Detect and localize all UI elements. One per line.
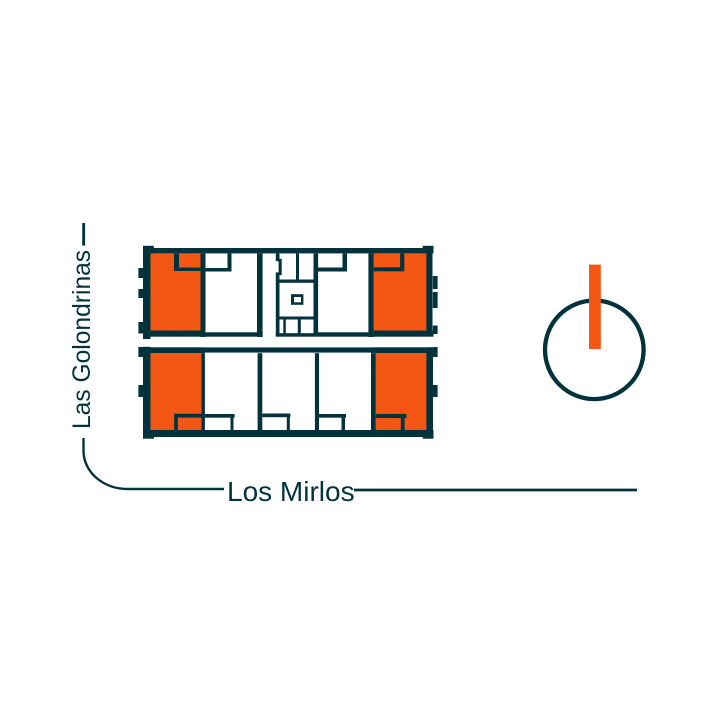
svg-text:Las Golondrinas: Las Golondrinas — [69, 250, 96, 429]
svg-text:Los Mirlos: Los Mirlos — [227, 476, 355, 507]
